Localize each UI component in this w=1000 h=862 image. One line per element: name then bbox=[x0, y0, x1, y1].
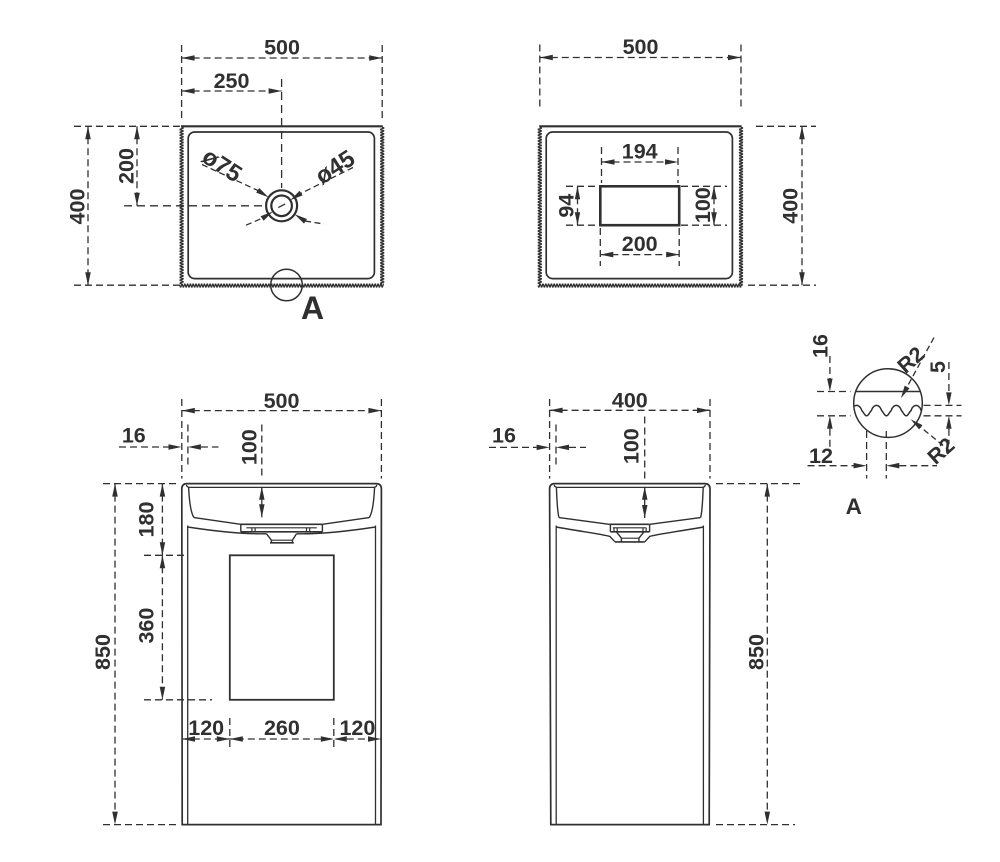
svg-text:850: 850 bbox=[91, 634, 115, 670]
svg-text:120: 120 bbox=[339, 716, 375, 740]
svg-text:400: 400 bbox=[778, 188, 802, 224]
svg-text:180: 180 bbox=[135, 502, 159, 538]
svg-text:94: 94 bbox=[554, 194, 578, 218]
svg-text:500: 500 bbox=[264, 389, 300, 413]
svg-text:100: 100 bbox=[619, 428, 643, 464]
svg-text:250: 250 bbox=[214, 69, 250, 93]
svg-text:260: 260 bbox=[264, 716, 300, 740]
svg-text:100: 100 bbox=[237, 429, 261, 465]
svg-text:400: 400 bbox=[612, 389, 648, 413]
svg-text:200: 200 bbox=[114, 148, 138, 184]
svg-text:194: 194 bbox=[622, 139, 658, 163]
svg-text:100: 100 bbox=[691, 187, 715, 223]
svg-text:500: 500 bbox=[264, 35, 300, 59]
svg-text:A: A bbox=[846, 494, 862, 519]
svg-text:5: 5 bbox=[926, 361, 950, 373]
svg-text:200: 200 bbox=[622, 232, 658, 256]
svg-text:12: 12 bbox=[809, 444, 833, 468]
svg-text:16: 16 bbox=[808, 334, 832, 358]
svg-text:850: 850 bbox=[745, 634, 769, 670]
svg-text:500: 500 bbox=[623, 35, 659, 59]
svg-text:A: A bbox=[301, 290, 324, 326]
svg-text:400: 400 bbox=[65, 189, 89, 225]
svg-text:16: 16 bbox=[492, 424, 516, 448]
svg-text:360: 360 bbox=[135, 608, 159, 644]
svg-text:16: 16 bbox=[122, 424, 146, 448]
svg-text:120: 120 bbox=[188, 716, 224, 740]
